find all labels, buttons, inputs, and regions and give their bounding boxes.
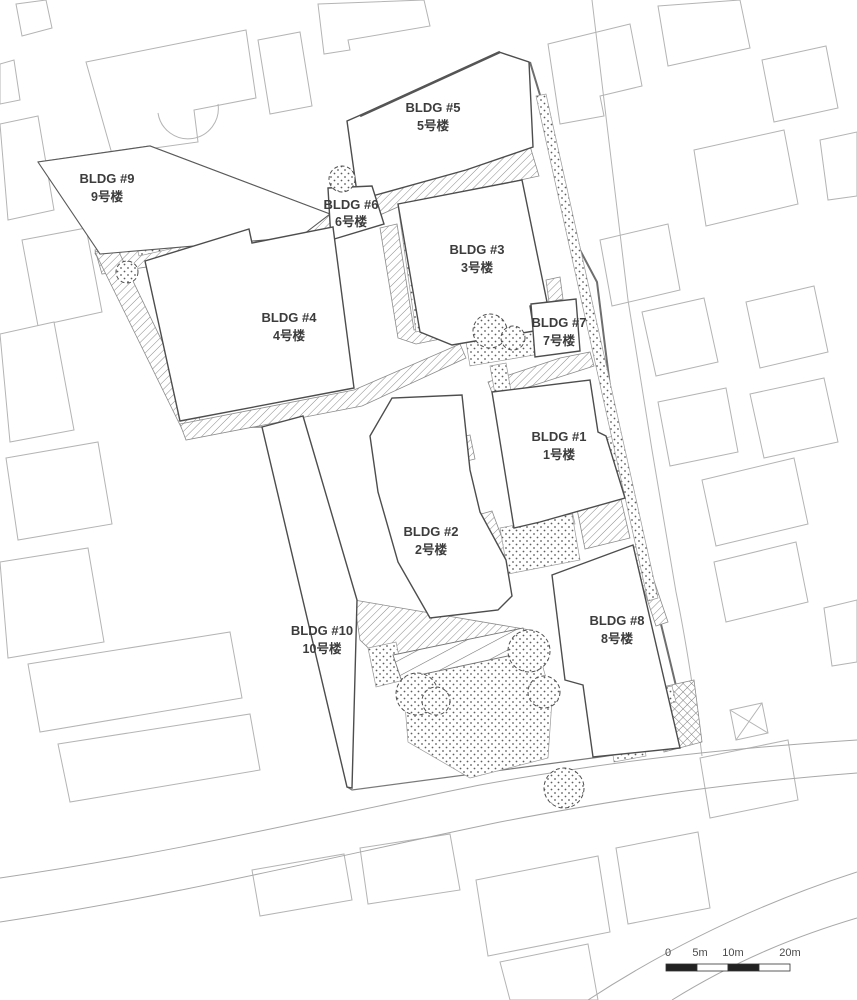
building-1-label-zh: 1号楼 bbox=[543, 447, 575, 462]
context-building bbox=[0, 60, 20, 104]
site-plan-svg: BLDG #1 1号楼 BLDG #2 2号楼 BLDG #3 3号楼 BLDG… bbox=[0, 0, 857, 1000]
context-building bbox=[0, 322, 74, 442]
scale-tick-20m: 20m bbox=[779, 947, 800, 959]
building-5-label-zh: 5号楼 bbox=[417, 118, 449, 133]
context-building bbox=[694, 130, 798, 226]
scale-bar-segment bbox=[728, 964, 759, 971]
scale-tick-10m: 10m bbox=[722, 947, 743, 959]
building-4-label-en: BLDG #4 bbox=[262, 310, 318, 325]
scale-tick-0: 0 bbox=[665, 947, 671, 959]
building-7-label-zh: 7号楼 bbox=[543, 333, 575, 348]
context-building bbox=[0, 548, 104, 658]
context-building bbox=[658, 388, 738, 466]
context-building bbox=[658, 0, 750, 66]
context-building bbox=[820, 132, 857, 200]
building-2-label-en: BLDG #2 bbox=[404, 524, 459, 539]
building-6-label-en: BLDG #6 bbox=[324, 197, 379, 212]
building-1-label-en: BLDG #1 bbox=[532, 429, 587, 444]
context-building bbox=[6, 442, 112, 540]
tree-icon bbox=[422, 687, 450, 715]
scale-bar-segment bbox=[697, 964, 728, 971]
building-10-label-zh: 10号楼 bbox=[303, 641, 342, 656]
road-edge bbox=[672, 918, 857, 1000]
scale-bar: 0 5m 10m 20m bbox=[665, 947, 801, 971]
building-7-label-en: BLDG #7 bbox=[532, 315, 587, 330]
context-building bbox=[750, 378, 838, 458]
context-building bbox=[476, 856, 610, 956]
tree-icon bbox=[116, 261, 138, 283]
building-9-label-zh: 9号楼 bbox=[91, 189, 123, 204]
building-9-label-en: BLDG #9 bbox=[80, 171, 135, 186]
building-3-label-en: BLDG #3 bbox=[450, 242, 505, 257]
tree-icon bbox=[544, 768, 584, 808]
tree-icon bbox=[501, 326, 525, 350]
context-building bbox=[714, 542, 808, 622]
building-8-label-en: BLDG #8 bbox=[590, 613, 645, 628]
context-building bbox=[252, 854, 352, 916]
scale-bar-segment bbox=[666, 964, 697, 971]
context-building bbox=[762, 46, 838, 122]
building-8-footprint bbox=[552, 545, 680, 757]
tree-icon bbox=[329, 166, 355, 192]
tree-icon bbox=[528, 676, 560, 708]
tree-icon bbox=[508, 630, 550, 672]
context-building bbox=[548, 24, 642, 124]
scale-bar-segment bbox=[759, 964, 790, 971]
dotted-paving bbox=[500, 514, 580, 574]
context-building bbox=[16, 0, 52, 36]
context-building bbox=[642, 298, 718, 376]
building-4-label-zh: 4号楼 bbox=[273, 328, 305, 343]
tree-icon bbox=[473, 314, 507, 348]
site-plan-canvas: BLDG #1 1号楼 BLDG #2 2号楼 BLDG #3 3号楼 BLDG… bbox=[0, 0, 857, 1000]
context-building bbox=[360, 834, 460, 904]
context-building bbox=[22, 228, 102, 326]
context-building bbox=[318, 0, 430, 54]
building-2-footprint bbox=[370, 395, 512, 618]
context-building bbox=[258, 32, 312, 114]
context-building bbox=[600, 224, 680, 306]
building-10-footprint bbox=[262, 416, 357, 788]
context-building bbox=[616, 832, 710, 924]
building-8-label-zh: 8号楼 bbox=[601, 631, 633, 646]
building-6-label-zh: 6号楼 bbox=[335, 214, 367, 229]
context-building bbox=[702, 458, 808, 546]
building-4-footprint bbox=[145, 227, 354, 421]
building-5-label-en: BLDG #5 bbox=[406, 100, 461, 115]
scale-tick-5m: 5m bbox=[692, 947, 707, 959]
building-3-label-zh: 3号楼 bbox=[461, 260, 493, 275]
context-building bbox=[86, 30, 256, 154]
building-2-label-zh: 2号楼 bbox=[415, 542, 447, 557]
context-building bbox=[500, 944, 598, 1000]
context-building bbox=[824, 600, 857, 666]
context-building bbox=[746, 286, 828, 368]
building-10-label-en: BLDG #10 bbox=[291, 623, 353, 638]
context-building bbox=[58, 714, 260, 802]
hatch-paving bbox=[546, 277, 563, 302]
